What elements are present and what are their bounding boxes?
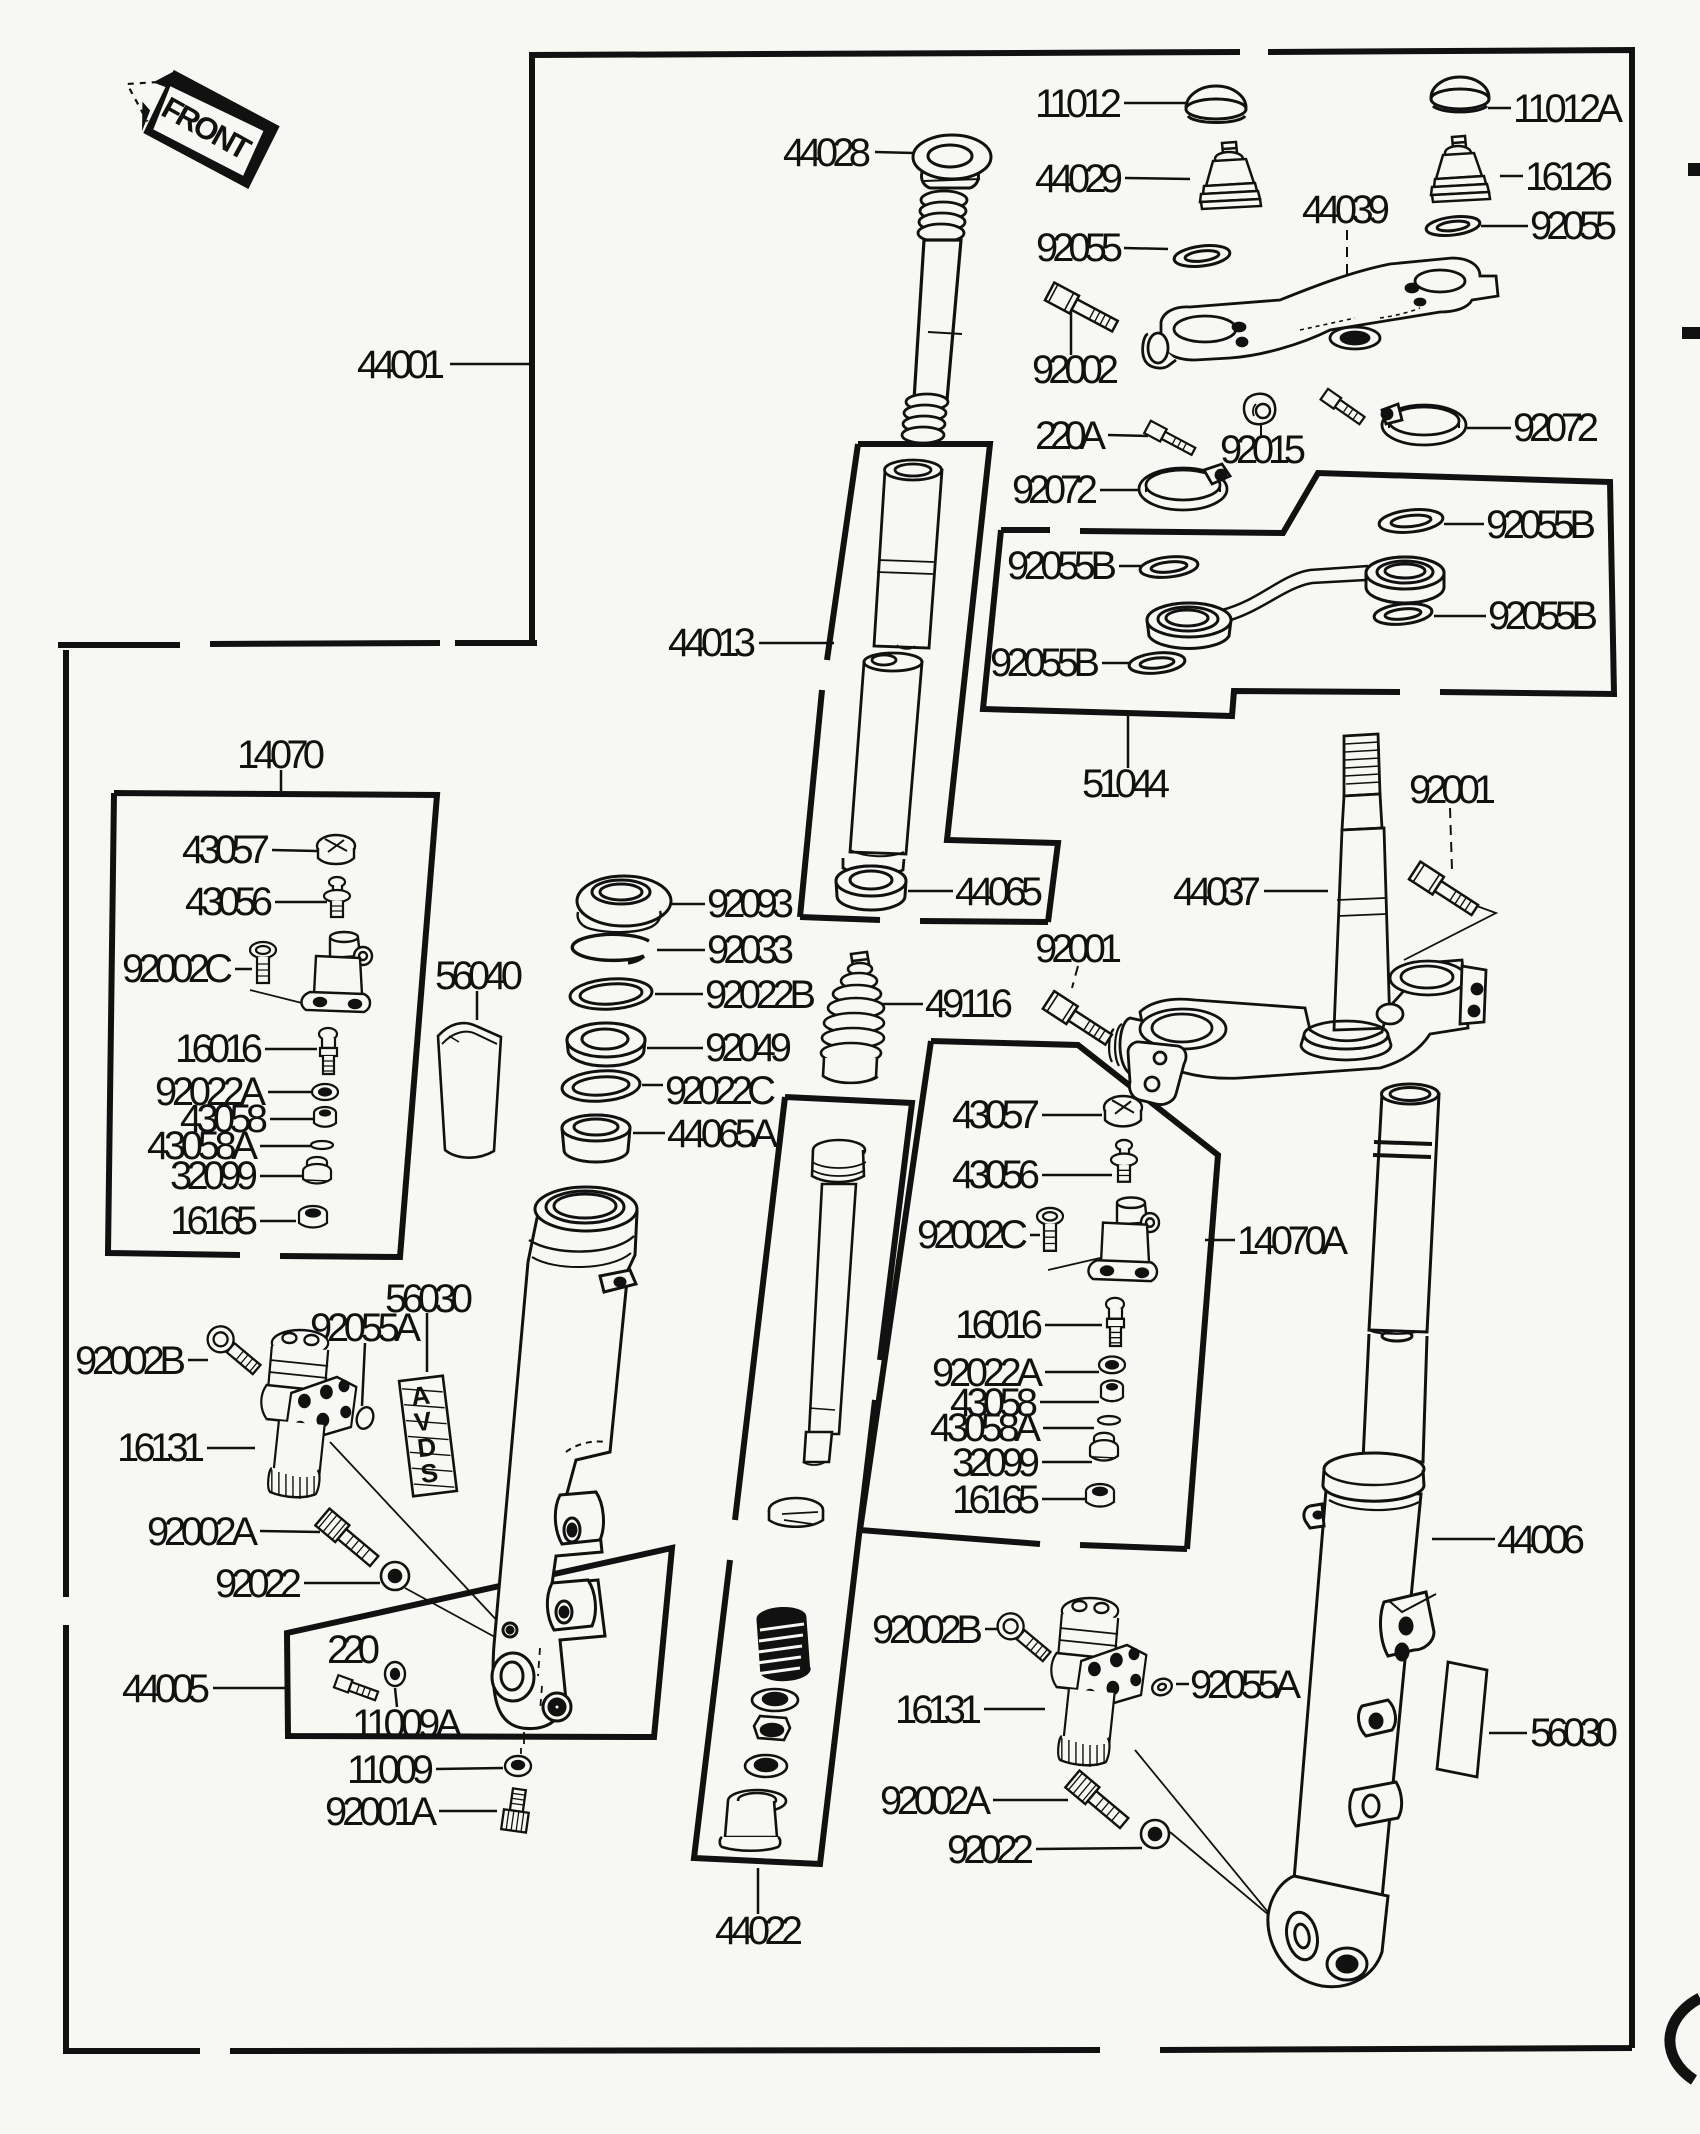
svg-text:92049: 92049 (705, 1026, 792, 1070)
svg-text:43056: 43056 (185, 880, 273, 924)
svg-text:92055: 92055 (1036, 226, 1123, 270)
svg-text:92055B: 92055B (1488, 594, 1598, 638)
svg-text:44065A: 44065A (667, 1112, 778, 1156)
svg-text:16131: 16131 (895, 1688, 982, 1732)
svg-text:44005: 44005 (122, 1667, 210, 1711)
svg-text:32099: 32099 (170, 1154, 258, 1198)
svg-text:16131: 16131 (117, 1426, 205, 1470)
svg-text:92002: 92002 (1032, 348, 1119, 392)
svg-text:16016: 16016 (175, 1027, 263, 1071)
svg-text:44039: 44039 (1302, 188, 1390, 232)
svg-text:92001: 92001 (1035, 927, 1122, 971)
svg-text:14070A: 14070A (1237, 1219, 1348, 1263)
svg-text:44037: 44037 (1173, 870, 1261, 914)
svg-text:43057: 43057 (182, 828, 270, 872)
svg-text:92022: 92022 (215, 1562, 302, 1606)
svg-text:44022: 44022 (715, 1909, 803, 1953)
svg-text:220A: 220A (1035, 414, 1106, 458)
svg-text:44006: 44006 (1497, 1518, 1585, 1562)
svg-text:11012: 11012 (1035, 82, 1122, 126)
svg-text:44013: 44013 (668, 621, 756, 665)
svg-text:92093: 92093 (707, 882, 794, 926)
svg-text:92002C: 92002C (122, 947, 233, 991)
svg-text:16165: 16165 (952, 1478, 1040, 1522)
svg-text:16165: 16165 (170, 1199, 258, 1243)
svg-text:44029: 44029 (1035, 157, 1123, 201)
svg-text:92055: 92055 (1530, 204, 1617, 248)
svg-text:44065: 44065 (955, 870, 1043, 914)
svg-text:11009: 11009 (347, 1748, 434, 1792)
svg-text:92001A: 92001A (325, 1790, 437, 1834)
svg-text:92033: 92033 (707, 928, 794, 972)
svg-text:92001: 92001 (1409, 768, 1496, 812)
svg-text:92055B: 92055B (1486, 503, 1596, 547)
svg-text:11009A: 11009A (352, 1702, 462, 1746)
svg-text:51044: 51044 (1082, 762, 1170, 806)
svg-text:56040: 56040 (435, 954, 523, 998)
svg-text:16016: 16016 (955, 1303, 1043, 1347)
svg-text:49116: 49116 (925, 982, 1013, 1026)
svg-text:220: 220 (327, 1628, 380, 1672)
svg-text:44028: 44028 (783, 131, 871, 175)
svg-text:92002C: 92002C (917, 1213, 1028, 1257)
svg-text:11012A: 11012A (1513, 87, 1623, 131)
svg-text:56030: 56030 (1530, 1711, 1618, 1755)
svg-text:92022: 92022 (947, 1828, 1034, 1872)
svg-text:92022C: 92022C (665, 1069, 776, 1113)
svg-text:92002B: 92002B (872, 1608, 983, 1652)
svg-text:44001: 44001 (357, 343, 445, 387)
svg-text:92072: 92072 (1513, 406, 1599, 450)
svg-text:92022B: 92022B (705, 973, 816, 1017)
svg-text:92055A: 92055A (1190, 1663, 1301, 1707)
svg-text:92072: 92072 (1012, 468, 1098, 512)
svg-text:16126: 16126 (1525, 155, 1613, 199)
svg-text:43057: 43057 (952, 1093, 1040, 1137)
svg-text:92002A: 92002A (147, 1510, 258, 1554)
svg-text:92055B: 92055B (990, 641, 1100, 685)
svg-text:92015: 92015 (1220, 428, 1306, 472)
svg-text:92002A: 92002A (880, 1779, 991, 1823)
svg-text:43056: 43056 (952, 1153, 1040, 1197)
svg-text:92002B: 92002B (75, 1339, 186, 1383)
svg-text:92055B: 92055B (1007, 544, 1117, 588)
